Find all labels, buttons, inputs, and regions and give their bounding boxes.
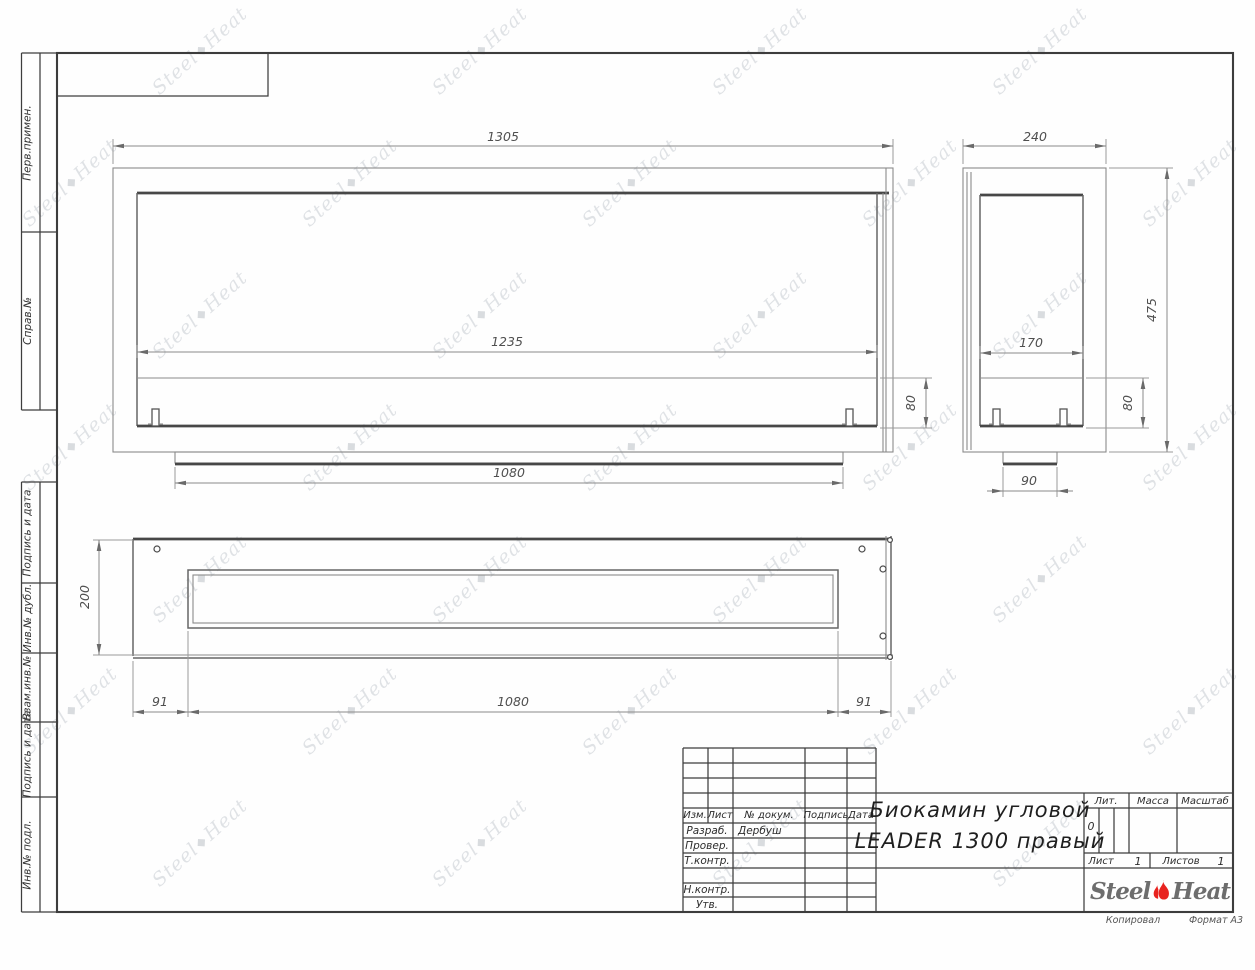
burner-pin-right <box>846 409 853 426</box>
top-view <box>133 536 893 660</box>
logo-steel-text: Steel <box>1090 878 1150 905</box>
listov-value: 1 <box>1218 855 1225 868</box>
burner-pin-left <box>152 409 159 426</box>
dim-front-overall-width: 1305 <box>487 129 519 144</box>
copied-note: Копировал <box>1106 915 1160 926</box>
list-value: 1 <box>1135 855 1142 868</box>
steelheat-logo: Steel Heat <box>1090 872 1230 910</box>
dim-top-opening-length: 1080 <box>497 694 529 709</box>
logo-heat-text: Heat <box>1172 878 1230 905</box>
col-izm: Изм. <box>683 810 707 821</box>
corner-hole <box>888 655 893 660</box>
burner-pin-front <box>993 409 1000 426</box>
format-note: Формат А3 <box>1189 915 1243 926</box>
dim-side-opening-depth: 170 <box>1019 335 1043 350</box>
massa-label: Масса <box>1137 796 1169 807</box>
dim-side-overall-depth: 240 <box>1023 129 1047 144</box>
margin-label-inv-podl: Инв.№ подл. <box>22 797 40 912</box>
row-razrab-label: Разраб. <box>686 825 727 837</box>
top-opening-outer <box>188 570 838 628</box>
side-base-box <box>1003 452 1057 463</box>
mounting-hole <box>880 633 886 639</box>
dim-side-burner-height: 80 <box>1120 395 1135 411</box>
burner-pin-back <box>1060 409 1067 426</box>
front-view-dimensions: 1305 1235 80 1080 <box>113 129 932 489</box>
dim-top-left-offset: 91 <box>152 694 168 709</box>
flame-icon <box>1151 876 1171 906</box>
dim-side-overall-height: 475 <box>1144 298 1159 322</box>
drawing-sheet: Steel◆HeatSteel◆HeatSteel◆HeatSteel◆Heat… <box>0 0 1255 970</box>
front-base-box <box>175 452 843 463</box>
list-label: Лист <box>1088 856 1113 867</box>
technical-drawing-canvas: 1305 1235 80 1080 <box>0 0 1255 970</box>
margin-label-perv-primen: Перв.примен. <box>22 53 40 232</box>
margin-label-sprav-no: Справ.№ <box>22 232 40 410</box>
dim-top-right-offset: 91 <box>856 694 872 709</box>
dim-top-overall-depth: 200 <box>77 585 92 609</box>
dim-front-opening-width: 1235 <box>491 334 523 349</box>
corner-hole <box>888 538 893 543</box>
doc-title-line2: LEADER 1300 правый <box>855 829 1106 853</box>
top-opening-inner <box>193 575 833 623</box>
mounting-hole <box>154 546 160 552</box>
col-podpis: Подпись <box>804 810 849 821</box>
dim-front-base-width: 1080 <box>493 465 525 480</box>
col-list: Лист <box>707 810 732 821</box>
margin-label-podpis-data-2: Подпись и дата <box>22 722 40 797</box>
lit-value: 0 <box>1088 820 1095 833</box>
lit-label: Лит. <box>1094 796 1117 807</box>
front-view <box>113 168 893 464</box>
row-utv-label: Утв. <box>696 899 718 911</box>
margin-label-inv-dubl: Инв.№ дубл. <box>22 583 40 653</box>
mounting-hole <box>880 566 886 572</box>
row-tkontr-label: Т.контр. <box>684 855 730 867</box>
row-prover-label: Провер. <box>685 840 729 852</box>
row-nkontr-label: Н.контр. <box>684 884 731 896</box>
side-view <box>963 168 1106 464</box>
dim-front-burner-height: 80 <box>903 395 918 411</box>
doc-title-line1: Биокамин угловой <box>870 798 1091 822</box>
side-view-dimensions: 240 170 80 475 90 <box>963 129 1173 497</box>
margin-label-podpis-data-1: Подпись и дата <box>22 482 40 583</box>
row-razrab-value: Дербуш <box>738 825 782 837</box>
mounting-hole <box>859 546 865 552</box>
col-doc-num: № докум. <box>744 810 793 821</box>
listov-label: Листов <box>1162 856 1199 867</box>
reference-designation-box <box>57 53 268 96</box>
masshtab-label: Масштаб <box>1181 796 1229 807</box>
dim-side-base-depth: 90 <box>1021 473 1037 488</box>
